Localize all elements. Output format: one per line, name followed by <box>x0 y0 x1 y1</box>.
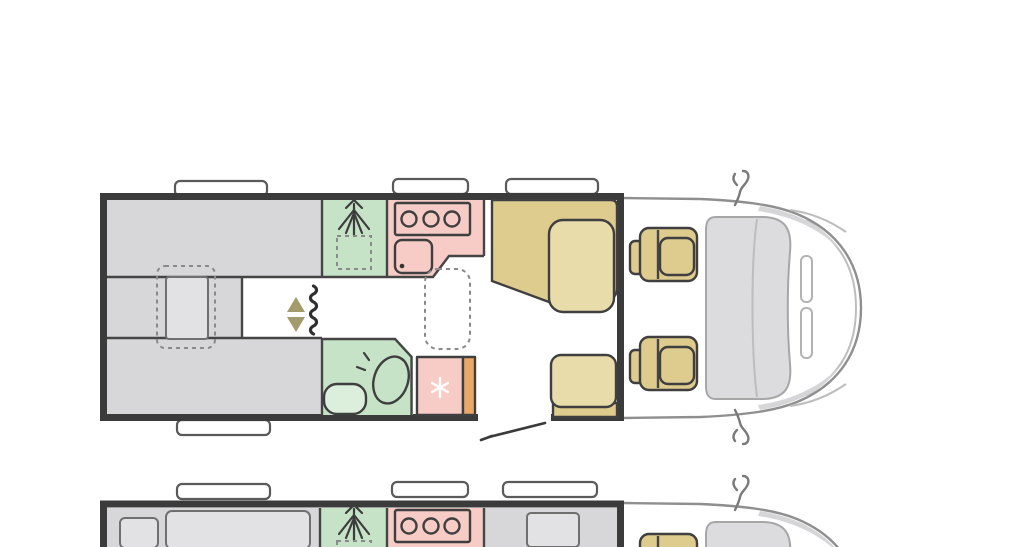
rear-bed-top <box>107 200 322 277</box>
fridge <box>417 357 475 415</box>
windscreen <box>706 217 790 399</box>
sink-icon <box>395 240 432 273</box>
headlight-left <box>801 256 812 302</box>
cab-seat <box>640 534 697 547</box>
roof-windows <box>177 482 597 499</box>
side-mirror-top-icon <box>734 171 749 205</box>
door-swing-icon <box>489 423 545 437</box>
hob-three-burner-icon <box>395 510 470 542</box>
fridge-side-panel <box>463 357 475 415</box>
windscreen <box>706 522 790 547</box>
washbasin-icon <box>324 384 366 414</box>
floorplan-diagram-page <box>0 0 1024 547</box>
floorplan-option-2-partial[interactable] <box>95 455 875 547</box>
side-bench-seat <box>551 355 617 417</box>
cab-partial <box>623 476 861 547</box>
cab-seat-right <box>630 337 697 390</box>
entry-door <box>478 412 551 440</box>
side-mirror-icon <box>734 476 749 510</box>
rear-bed-bottom <box>107 338 322 414</box>
headlight-right <box>801 308 812 358</box>
cab-seat-left <box>630 228 697 281</box>
cab <box>623 171 861 444</box>
between-beds-step <box>157 266 215 348</box>
floorplan-option-1[interactable] <box>95 163 875 455</box>
storage-unit <box>527 513 579 547</box>
pillow <box>120 518 158 547</box>
mattress <box>166 511 310 547</box>
